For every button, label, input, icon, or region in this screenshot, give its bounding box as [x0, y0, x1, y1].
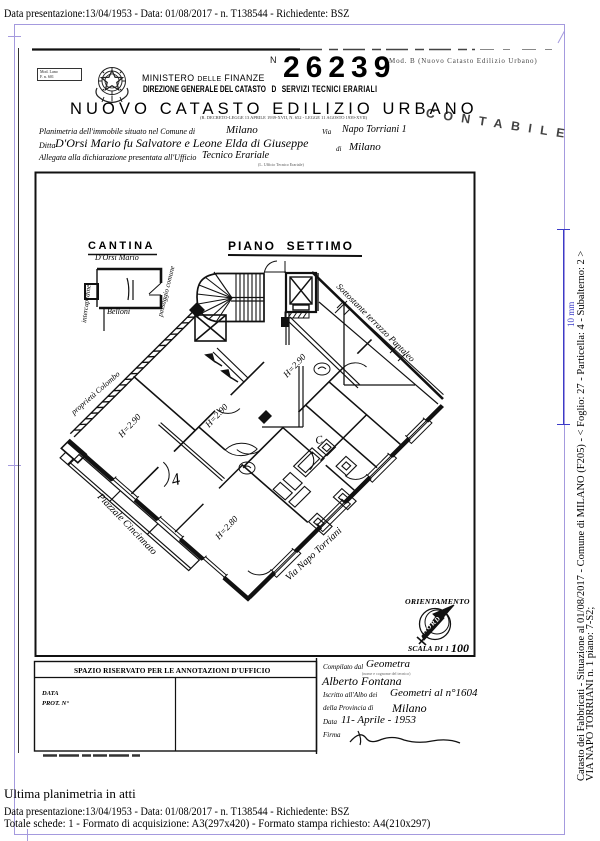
svg-text:VIA NAPO TORRIANI n. 1 piano:: VIA NAPO TORRIANI n. 1 piano: 7-S2;: [585, 607, 596, 781]
